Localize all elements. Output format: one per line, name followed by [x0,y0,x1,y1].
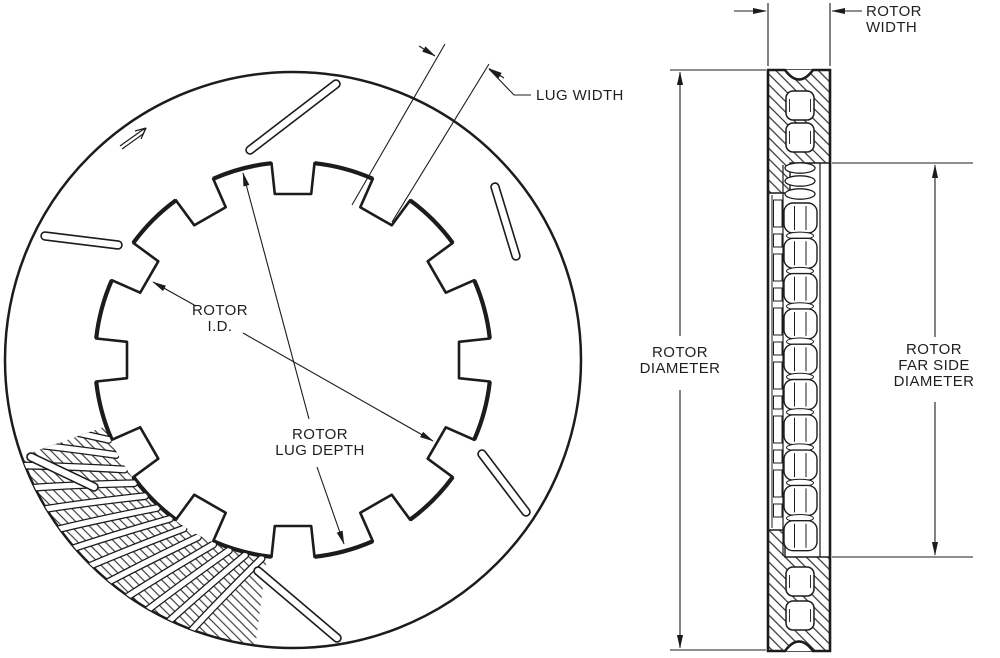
label-text: DIAMETER [618,361,742,377]
label-text: ROTOR [168,303,272,319]
rotation-direction-arrow-icon [120,128,146,149]
label-rotor-width: ROTOR WIDTH [866,4,922,36]
side-view [768,70,830,651]
label-rotor-diameter: ROTOR DIAMETER [618,345,742,377]
label-text: I.D. [168,319,272,335]
rotor-technical-drawing: LUG WIDTH ROTOR I.D. ROTOR LUG DEPTH ROT… [0,0,1000,658]
label-rotor-lug-depth: ROTOR LUG DEPTH [252,427,388,459]
label-text: LUG WIDTH [536,88,624,104]
label-rotor-far-side-diameter: ROTOR FAR SIDE DIAMETER [872,342,996,390]
label-rotor-id: ROTOR I.D. [168,303,272,335]
label-text: DIAMETER [872,374,996,390]
label-text: FAR SIDE [872,358,996,374]
label-text: LUG DEPTH [252,443,388,459]
label-text: WIDTH [866,20,922,36]
label-text: ROTOR [866,4,922,20]
label-text: ROTOR [872,342,996,358]
drawing-linework [0,0,1000,658]
label-text: ROTOR [252,427,388,443]
label-lug-width: LUG WIDTH [536,88,624,104]
label-text: ROTOR [618,345,742,361]
